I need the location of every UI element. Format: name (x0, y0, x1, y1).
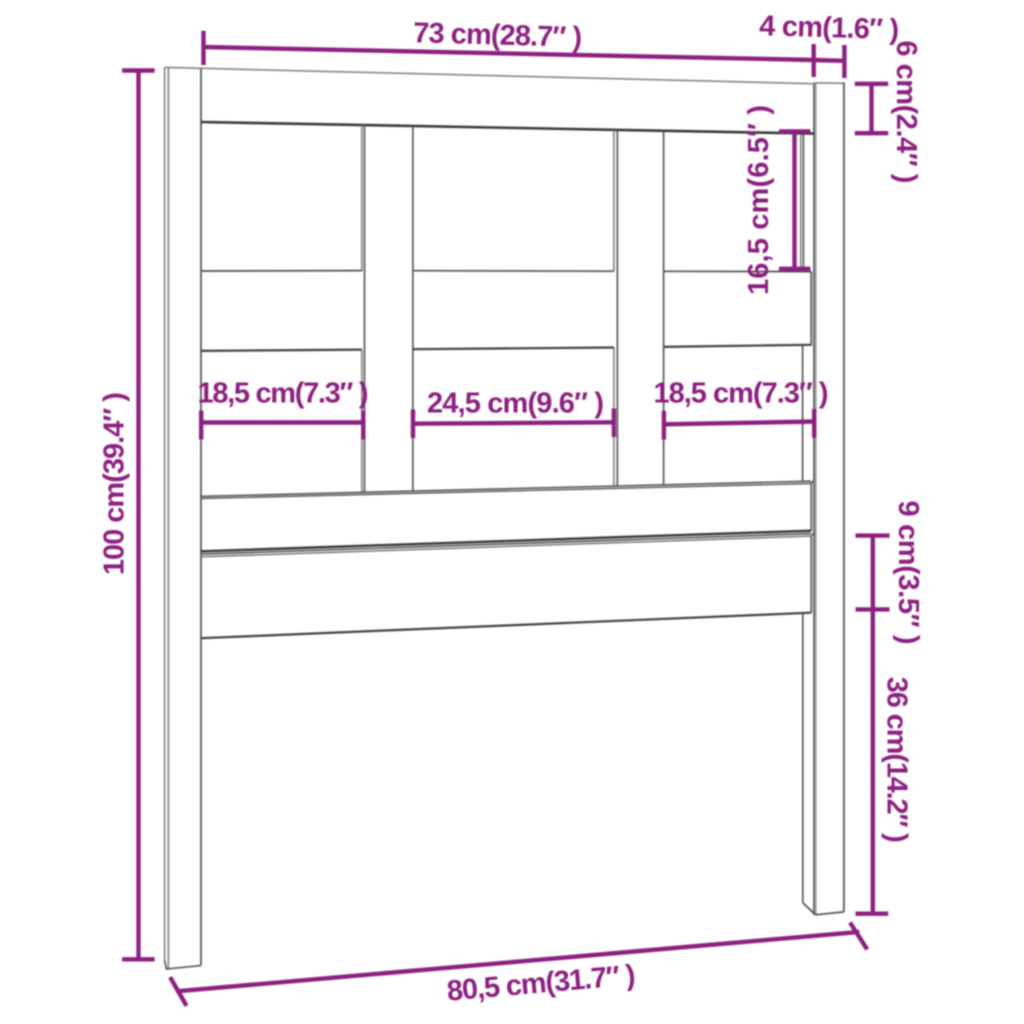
svg-text:18,5 cm(7.3″ ): 18,5 cm(7.3″ ) (654, 377, 829, 409)
svg-text:18,5 cm(7.3″ ): 18,5 cm(7.3″ ) (198, 377, 369, 409)
svg-text:4 cm(1.6″ ): 4 cm(1.6″ ) (759, 10, 900, 46)
svg-text:73 cm(28.7″ ): 73 cm(28.7″ ) (413, 17, 583, 54)
svg-text:24,5 cm(9.6″ ): 24,5 cm(9.6″ ) (427, 387, 604, 419)
svg-text:6 cm(2.4″ ): 6 cm(2.4″ ) (890, 40, 922, 183)
svg-text:16,5 cm(6.5″ ): 16,5 cm(6.5″ ) (743, 105, 775, 295)
svg-text:9 cm(3.5″ ): 9 cm(3.5″ ) (892, 501, 924, 645)
svg-text:36 cm(14.2″ ): 36 cm(14.2″ ) (881, 677, 913, 843)
svg-text:100 cm(39.4″ ): 100 cm(39.4″ ) (99, 392, 131, 575)
